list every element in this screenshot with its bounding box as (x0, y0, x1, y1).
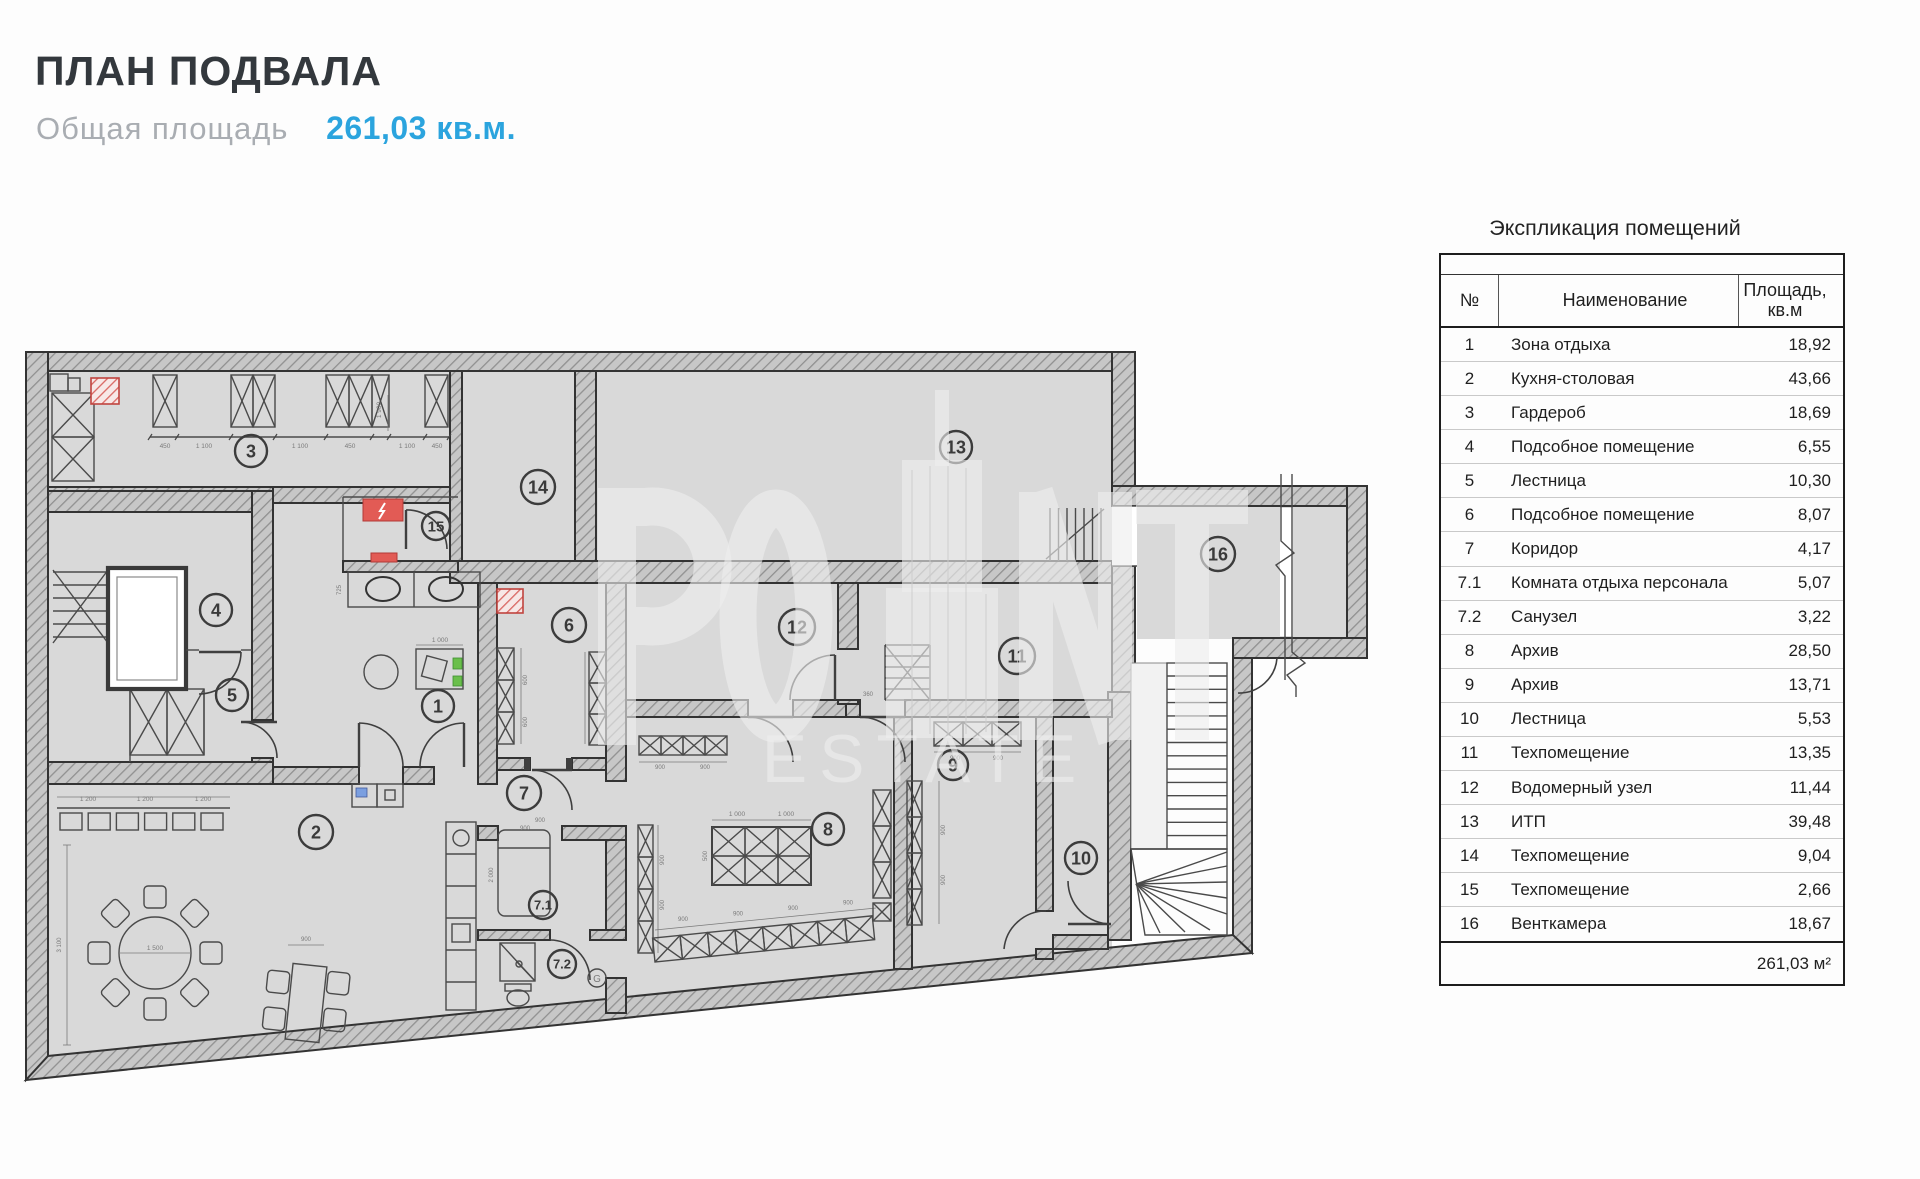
svg-text:725: 725 (337, 584, 343, 595)
svg-text:900: 900 (700, 765, 711, 771)
svg-text:1 000: 1 000 (778, 811, 795, 818)
svg-text:360: 360 (863, 692, 874, 698)
svg-text:5: 5 (227, 685, 237, 705)
svg-text:900: 900 (941, 874, 947, 885)
svg-text:450: 450 (345, 443, 356, 450)
svg-text:1 100: 1 100 (196, 443, 213, 450)
svg-text:15: 15 (428, 518, 445, 535)
svg-text:1: 1 (433, 696, 443, 716)
svg-text:1 000: 1 000 (729, 811, 746, 818)
svg-text:900: 900 (678, 917, 689, 923)
svg-text:8: 8 (823, 819, 833, 839)
svg-text:10: 10 (1071, 848, 1091, 868)
svg-text:900: 900 (660, 854, 666, 865)
svg-text:1 500: 1 500 (147, 945, 164, 952)
svg-text:7: 7 (519, 783, 529, 803)
svg-text:3: 3 (246, 441, 256, 461)
svg-text:1 000: 1 000 (432, 637, 449, 644)
svg-text:2 000: 2 000 (489, 867, 495, 883)
svg-text:1 900: 1 900 (376, 401, 383, 418)
svg-text:900: 900 (788, 906, 799, 912)
svg-text:900: 900 (535, 818, 546, 824)
svg-text:600: 600 (523, 716, 529, 727)
svg-text:4: 4 (211, 600, 221, 620)
svg-text:G: G (593, 974, 601, 985)
svg-text:900: 900 (733, 912, 744, 918)
svg-text:900: 900 (660, 899, 666, 910)
svg-text:7.1: 7.1 (534, 898, 552, 913)
svg-text:900: 900 (655, 765, 666, 771)
svg-text:600: 600 (523, 674, 529, 685)
svg-text:ESTATE: ESTATE (762, 721, 1088, 797)
svg-text:900: 900 (301, 937, 312, 943)
svg-text:900: 900 (843, 900, 854, 906)
svg-text:16: 16 (1208, 544, 1228, 564)
svg-text:6: 6 (564, 615, 574, 635)
svg-text:2: 2 (311, 822, 321, 842)
svg-text:900: 900 (941, 824, 947, 835)
svg-text:500: 500 (703, 850, 709, 861)
svg-text:1 100: 1 100 (292, 443, 309, 450)
svg-text:7.2: 7.2 (553, 957, 571, 972)
svg-text:450: 450 (160, 443, 171, 450)
svg-text:450: 450 (432, 443, 443, 450)
svg-text:3 100: 3 100 (57, 937, 63, 953)
svg-text:14: 14 (528, 477, 548, 497)
svg-text:1 100: 1 100 (399, 443, 416, 450)
svg-text:900: 900 (520, 826, 531, 832)
